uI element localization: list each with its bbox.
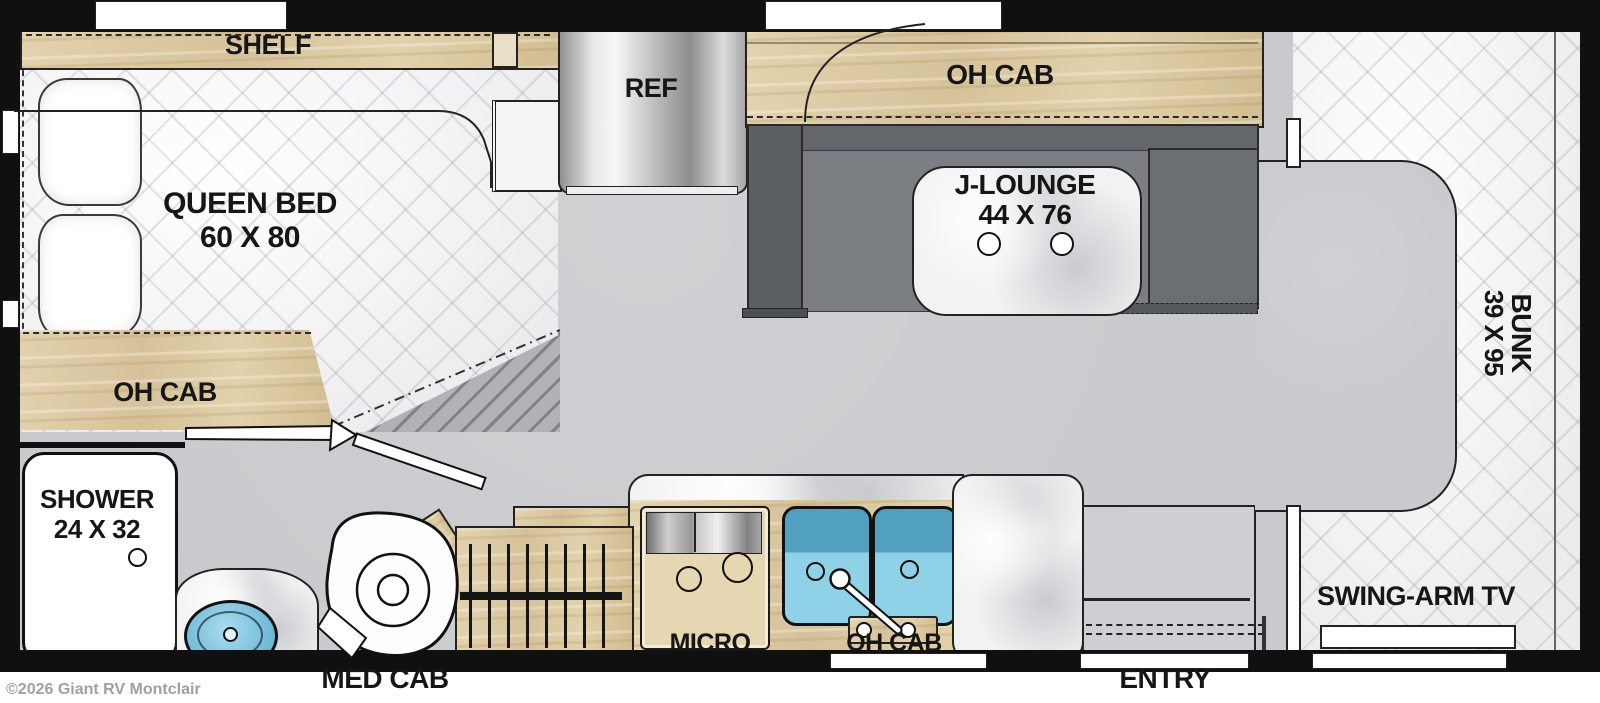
entry-label: ENTRY	[1065, 664, 1265, 693]
j-lounge-size: 44 X 76	[915, 200, 1135, 229]
bunk-size: 39 X 95	[1480, 290, 1507, 376]
bedroom-oh-cab-label: OH CAB	[65, 378, 265, 406]
entry-step-edge	[1080, 598, 1250, 601]
shower-size: 24 X 32	[22, 516, 172, 543]
wardrobe-rod	[460, 592, 622, 600]
range-stainless-panel	[646, 512, 762, 554]
pillow	[38, 78, 142, 206]
rv-floorplan: SHELF QUEEN BED 60 X 80 OH CAB REF OH CA…	[0, 0, 1600, 703]
burner	[676, 566, 702, 592]
bunk-edge-line	[1554, 30, 1556, 652]
micro-label: MICRO	[630, 630, 790, 656]
bunk-label: BUNK	[1507, 294, 1536, 373]
couch-left-arm	[747, 124, 803, 316]
wall-left	[0, 0, 20, 672]
bunk-label-group: BUNK 39 X 95	[1471, 263, 1545, 403]
shower-drain	[128, 548, 147, 567]
wall-right	[1580, 0, 1600, 672]
window-top-galley	[765, 1, 1002, 30]
bunk-wall-stub	[1286, 118, 1301, 168]
shower-label: SHOWER	[22, 486, 172, 513]
copyright-text: ©2026 Giant RV Montclair	[6, 682, 406, 699]
galley-oh-cab-seam	[747, 42, 1258, 44]
queen-bed-label: QUEEN BED	[140, 188, 360, 220]
bath-wall	[13, 442, 185, 448]
burner	[722, 552, 753, 583]
table-cup-holder	[977, 232, 1001, 256]
shelf-label: SHELF	[168, 31, 368, 59]
couch-left-trim	[742, 308, 808, 318]
window-top-bedroom	[95, 1, 287, 30]
sink-oh-cab-label: OH CAB	[814, 630, 974, 656]
window-bottom-tv	[1312, 653, 1507, 669]
ref-label: REF	[591, 74, 711, 102]
kitchen-sink-left	[782, 506, 872, 626]
window-left-bed	[2, 110, 19, 154]
entry-step-well	[1078, 505, 1256, 659]
lav-drain	[223, 627, 238, 642]
tv-screen	[1320, 625, 1516, 649]
refrigerator	[558, 30, 748, 194]
table-cup-holder	[1050, 232, 1074, 256]
bedroom-oh-cab-seam	[13, 332, 311, 334]
floor-notch	[1255, 160, 1457, 512]
shelf-end-box	[492, 32, 518, 68]
swing-arm-tv-label: SWING-ARM TV	[1296, 582, 1536, 610]
range-panel-divider	[694, 512, 696, 552]
grab-rail	[1086, 624, 1264, 635]
j-lounge-label: J-LOUNGE	[915, 170, 1135, 199]
window-left-cab	[2, 300, 19, 328]
queen-bed-size: 60 X 80	[140, 222, 360, 254]
sink-drain	[806, 562, 825, 581]
bedside-cabinet	[492, 100, 562, 192]
galley-oh-cab-label: OH CAB	[900, 60, 1100, 89]
galley-oh-cab-dash	[747, 116, 1258, 118]
ref-base	[566, 186, 738, 195]
pillow	[38, 214, 142, 338]
sink-drain	[900, 560, 919, 579]
couch-right-arm	[1148, 148, 1259, 309]
couch-right-trim	[1116, 303, 1258, 314]
